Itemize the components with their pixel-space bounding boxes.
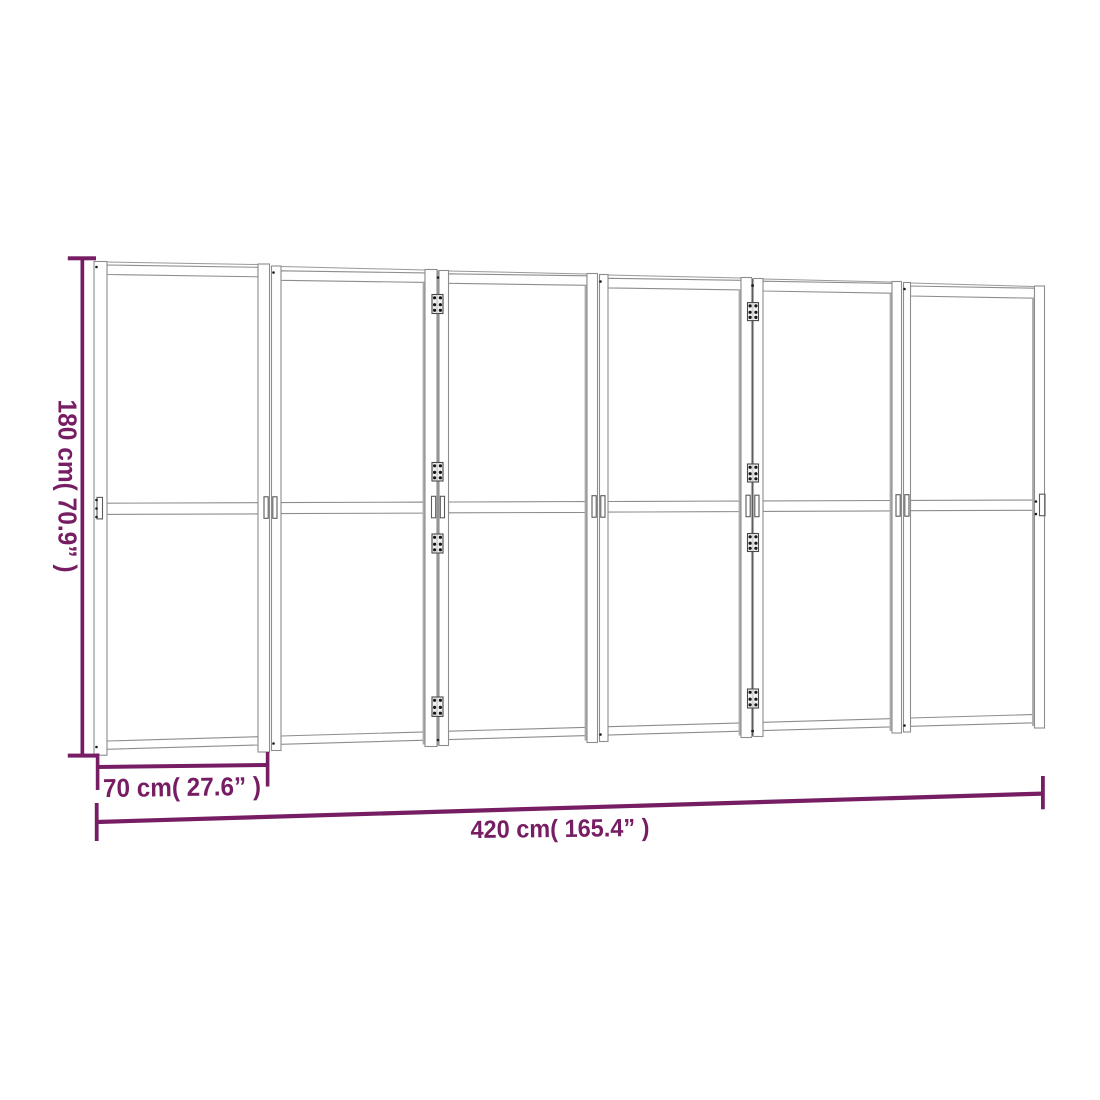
- svg-text:70 cm( 27.6” ): 70 cm( 27.6” ): [103, 771, 261, 803]
- svg-text:420 cm( 165.4” ): 420 cm( 165.4” ): [470, 814, 649, 844]
- svg-text:180 cm( 70.9” ): 180 cm( 70.9” ): [53, 400, 83, 573]
